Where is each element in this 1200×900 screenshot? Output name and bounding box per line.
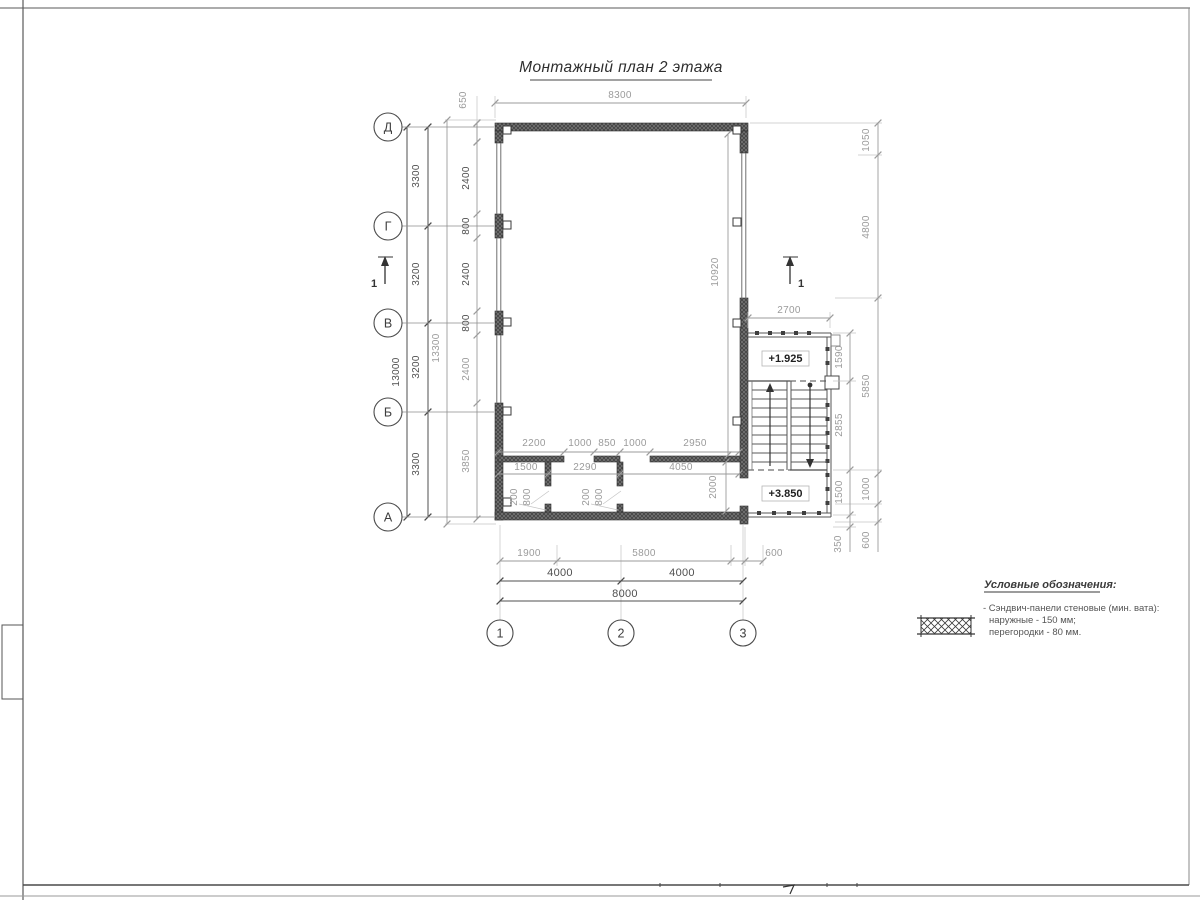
page-title: Монтажный план 2 этажа xyxy=(519,59,723,76)
dim-p2-2: 2290 xyxy=(573,462,597,473)
extension-lines xyxy=(445,96,882,620)
dim-p1-1: 2200 xyxy=(522,438,546,449)
dim-p2-1: 1500 xyxy=(514,462,538,473)
dim-door2-width: 800 xyxy=(594,488,605,506)
floor-plan-canvas: Монтажный план 2 этажа xyxy=(0,0,1200,900)
dim-stair-2: 2855 xyxy=(834,413,845,437)
legend-line-3: перегородки - 80 мм. xyxy=(989,627,1081,638)
axis-label-b: Б xyxy=(384,406,392,420)
dim-top-overall: 8300 xyxy=(608,90,632,101)
partition-b xyxy=(594,456,620,462)
partition-c xyxy=(650,456,740,462)
dim-b1-2: 5800 xyxy=(632,548,656,559)
dim-wall-6: 3850 xyxy=(461,449,472,473)
section-mark-right: 1 xyxy=(798,278,804,290)
partition-v2-stub xyxy=(617,504,623,512)
dim-wall-5: 2400 xyxy=(461,357,472,381)
dim-b2-2: 4000 xyxy=(669,567,695,579)
drawing-sheet: Монтажный план 2 этажа xyxy=(0,0,1200,900)
dim-stair-width: 2700 xyxy=(777,305,801,316)
dim-span-gv: 3200 xyxy=(411,262,422,286)
dim-wall-1: 2400 xyxy=(461,166,472,190)
dim-p1-4: 1000 xyxy=(623,438,647,449)
dim-door2-gap: 200 xyxy=(581,488,592,506)
dim-span-dg: 3300 xyxy=(411,164,422,188)
drawing-title: Монтажный план 2 этажа xyxy=(519,59,723,80)
dim-wall-3: 2400 xyxy=(461,262,472,286)
dim-stair-3: 1500 xyxy=(834,480,845,504)
legend-line-1: - Сэндвич-панели стеновые (мин. вата): xyxy=(983,603,1159,614)
dim-b1-1: 1900 xyxy=(517,548,541,559)
axis-label-g: Г xyxy=(385,220,392,234)
wall-left-pier-v xyxy=(495,311,503,335)
dim-p1-5: 2950 xyxy=(683,438,707,449)
dim-left-overall: 13000 xyxy=(391,357,402,386)
dim-p2-3: 4050 xyxy=(669,462,693,473)
stair-landing-door xyxy=(825,376,839,389)
dim-right-4: 1000 xyxy=(861,477,872,501)
axis-label-v: В xyxy=(384,317,392,331)
dim-span-vb: 3200 xyxy=(411,355,422,379)
column-markers xyxy=(503,126,741,506)
dim-hall-height: 10920 xyxy=(710,257,721,286)
dim-b1-3: 600 xyxy=(765,548,783,559)
dim-bottom-overall: 8000 xyxy=(612,588,638,600)
glazing-lines xyxy=(497,143,746,403)
dim-right-2: 4800 xyxy=(861,215,872,239)
wall-left-corner xyxy=(495,131,503,143)
level-upper: +1.925 xyxy=(769,353,803,365)
legend-header: Условные обозначения: xyxy=(984,579,1117,591)
wall-right-bottom-piece xyxy=(740,506,748,524)
partition-v1-stub xyxy=(545,504,551,512)
section-marks: 1 1 xyxy=(371,256,804,290)
dim-stair-4: 350 xyxy=(833,535,844,553)
wall-bottom xyxy=(495,512,748,520)
dim-b2-1: 4000 xyxy=(547,567,573,579)
level-lower: +3.850 xyxy=(769,488,803,500)
stair-corner-post xyxy=(831,335,840,346)
axis-label-a: А xyxy=(384,511,393,525)
wall-left-pier-g xyxy=(495,214,503,238)
legend-swatch-sandwich-panel xyxy=(917,615,975,637)
axis-label-3: 3 xyxy=(740,627,747,641)
dim-right-3: 5850 xyxy=(861,374,872,398)
stair-flights xyxy=(748,381,827,470)
axis-label-1: 1 xyxy=(497,627,504,641)
axis-label-2: 2 xyxy=(618,627,625,641)
stair-treads xyxy=(752,390,827,462)
dim-top-offset: 650 xyxy=(458,91,469,109)
dim-stair-1: 1590 xyxy=(834,345,845,369)
dim-right-1: 1050 xyxy=(861,128,872,152)
axis-label-d: Д xyxy=(384,121,393,135)
dim-p1-3: 850 xyxy=(598,438,616,449)
legend: Условные обозначения: - Сэндвич-панели с… xyxy=(917,579,1159,638)
dim-span-ba: 3300 xyxy=(411,452,422,476)
dim-p1-2: 1000 xyxy=(568,438,592,449)
legend-line-2: наружные - 150 мм; xyxy=(989,615,1076,626)
dim-right-5: 600 xyxy=(861,531,872,549)
section-mark-left: 1 xyxy=(371,278,377,290)
dim-left-outer: 13300 xyxy=(431,333,442,362)
stairwell: +1.925 +3.850 xyxy=(748,331,840,517)
wall-top xyxy=(495,123,748,131)
dim-door1-width: 800 xyxy=(522,488,533,506)
dim-right-room: 2000 xyxy=(708,475,719,499)
sheet-frame xyxy=(0,0,1200,900)
dim-door1-gap: 200 xyxy=(509,488,520,506)
stair-direction-arrows xyxy=(766,383,814,468)
